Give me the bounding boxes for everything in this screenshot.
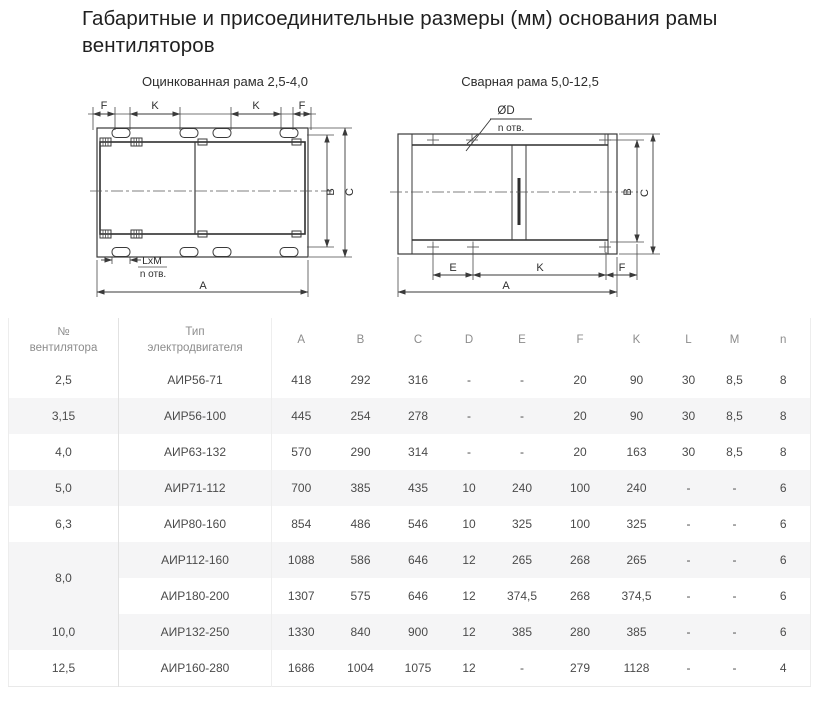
motor-type-cell: АИР71-112: [119, 470, 272, 506]
dimension-value-cell: 279: [552, 650, 609, 686]
dimension-value-cell: 8,5: [713, 398, 757, 434]
slot-holes-label: n отв.: [140, 269, 166, 280]
dimension-value-cell: 4: [757, 650, 811, 686]
fan-number-cell: 5,0: [9, 470, 119, 506]
dimension-value-cell: -: [665, 578, 713, 614]
dimension-value-cell: 268: [552, 542, 609, 578]
dimension-value-cell: -: [446, 362, 493, 398]
dimension-value-cell: 8: [757, 362, 811, 398]
fan-number-cell: 8,0: [9, 542, 119, 614]
dim-label-a: A: [502, 280, 510, 292]
table-row: 10,0АИР132-250133084090012385280385--6: [9, 614, 811, 650]
dimension-value-cell: 268: [552, 578, 609, 614]
dimension-value-cell: 374,5: [493, 578, 552, 614]
header-dim-A: A: [272, 318, 331, 362]
table-row: 8,0АИР112-160108858664612265268265--6: [9, 542, 811, 578]
header-dim-n: n: [757, 318, 811, 362]
dimension-value-cell: 8: [757, 398, 811, 434]
header-fan-number: № вентилятора: [9, 318, 119, 362]
fan-number-cell: 4,0: [9, 434, 119, 470]
dimension-value-cell: 1075: [391, 650, 446, 686]
dimension-value-cell: 20: [552, 362, 609, 398]
dimension-value-cell: 575: [331, 578, 391, 614]
dimension-value-cell: -: [446, 398, 493, 434]
dimension-value-cell: 854: [272, 506, 331, 542]
dimension-value-cell: 90: [609, 362, 665, 398]
dimension-value-cell: 1004: [331, 650, 391, 686]
hole-diameter-label: ØD: [497, 105, 514, 117]
dimension-value-cell: 646: [391, 578, 446, 614]
header-dim-L: L: [665, 318, 713, 362]
dim-label-f-left: F: [101, 100, 108, 112]
dimension-value-cell: 374,5: [609, 578, 665, 614]
dimension-value-cell: 290: [331, 434, 391, 470]
dimension-value-cell: 10: [446, 506, 493, 542]
dimension-value-cell: 12: [446, 614, 493, 650]
dimension-value-cell: 10: [446, 470, 493, 506]
dimension-value-cell: 840: [331, 614, 391, 650]
dimension-value-cell: 385: [331, 470, 391, 506]
header-dim-E: E: [493, 318, 552, 362]
dimension-value-cell: 12: [446, 650, 493, 686]
fan-number-cell: 10,0: [9, 614, 119, 650]
dimension-value-cell: 254: [331, 398, 391, 434]
dim-label-c: C: [639, 189, 651, 197]
dim-label-e: E: [449, 262, 456, 274]
fan-number-cell: 6,3: [9, 506, 119, 542]
dimension-value-cell: 8,5: [713, 434, 757, 470]
dimension-value-cell: 292: [331, 362, 391, 398]
dimension-value-cell: 546: [391, 506, 446, 542]
table-row: 12,5АИР160-28016861004107512-2791128--4: [9, 650, 811, 686]
dimension-value-cell: 90: [609, 398, 665, 434]
dimension-value-cell: -: [713, 470, 757, 506]
dimension-value-cell: 6: [757, 578, 811, 614]
dimension-value-cell: -: [665, 542, 713, 578]
welded-frame-drawing: ØD n отв.: [390, 92, 670, 310]
dimension-value-cell: -: [713, 506, 757, 542]
table-row: 4,0АИР63-132570290314--20163308,58: [9, 434, 811, 470]
table-body: 2,5АИР56-71418292316--2090308,583,15АИР5…: [9, 362, 811, 686]
dimension-value-cell: 316: [391, 362, 446, 398]
dimension-value-cell: 12: [446, 542, 493, 578]
motor-type-cell: АИР180-200: [119, 578, 272, 614]
header-dim-D: D: [446, 318, 493, 362]
header-dim-K: K: [609, 318, 665, 362]
motor-type-cell: АИР63-132: [119, 434, 272, 470]
table-row: 3,15АИР56-100445254278--2090308,58: [9, 398, 811, 434]
dimension-value-cell: 1307: [272, 578, 331, 614]
header-dim-F: F: [552, 318, 609, 362]
dim-label-b: B: [622, 188, 634, 195]
dim-label-f: F: [619, 262, 626, 274]
dimension-value-cell: 314: [391, 434, 446, 470]
table-row: 5,0АИР71-11270038543510240100240--6: [9, 470, 811, 506]
dimension-value-cell: 486: [331, 506, 391, 542]
header-dim-B: B: [331, 318, 391, 362]
dim-label-k-left: K: [151, 100, 159, 112]
dimension-value-cell: -: [665, 470, 713, 506]
dimension-value-cell: 100: [552, 470, 609, 506]
dimension-value-cell: -: [713, 614, 757, 650]
galvanized-frame-drawing: F K K F: [60, 92, 390, 310]
dim-label-a: A: [199, 280, 207, 292]
galvanized-frame-caption: Оцинкованная рама 2,5-4,0: [60, 74, 390, 92]
dimensions-table: № вентилятора Тип электродвигателя ABCDE…: [8, 318, 811, 687]
dimension-value-cell: 265: [493, 542, 552, 578]
dimension-value-cell: -: [713, 650, 757, 686]
welded-frame-caption: Сварная рама 5,0-12,5: [390, 74, 670, 92]
dim-label-f-right: F: [299, 100, 306, 112]
dimension-value-cell: 240: [609, 470, 665, 506]
motor-type-cell: АИР160-280: [119, 650, 272, 686]
header-motor-type: Тип электродвигателя: [119, 318, 272, 362]
dimension-value-cell: -: [493, 434, 552, 470]
dimension-value-cell: -: [493, 650, 552, 686]
dimension-value-cell: 646: [391, 542, 446, 578]
dimension-value-cell: 586: [331, 542, 391, 578]
table-row: 6,3АИР80-16085448654610325100325--6: [9, 506, 811, 542]
dimension-value-cell: -: [446, 434, 493, 470]
motor-type-cell: АИР112-160: [119, 542, 272, 578]
dimension-value-cell: 278: [391, 398, 446, 434]
dimension-value-cell: 240: [493, 470, 552, 506]
fan-number-cell: 3,15: [9, 398, 119, 434]
dimension-value-cell: -: [665, 614, 713, 650]
dimension-value-cell: -: [493, 398, 552, 434]
table-row: 2,5АИР56-71418292316--2090308,58: [9, 362, 811, 398]
dimension-value-cell: 30: [665, 434, 713, 470]
dimension-value-cell: 12: [446, 578, 493, 614]
dimension-value-cell: -: [713, 578, 757, 614]
motor-type-cell: АИР132-250: [119, 614, 272, 650]
table-header-row: № вентилятора Тип электродвигателя ABCDE…: [9, 318, 811, 362]
table-row: АИР180-200130757564612374,5268374,5--6: [9, 578, 811, 614]
motor-type-cell: АИР56-100: [119, 398, 272, 434]
dimension-value-cell: 435: [391, 470, 446, 506]
dimension-value-cell: 30: [665, 398, 713, 434]
dimension-value-cell: -: [665, 650, 713, 686]
dimension-value-cell: 6: [757, 506, 811, 542]
hole-count-label: n отв.: [498, 123, 524, 134]
dimension-value-cell: 6: [757, 542, 811, 578]
dim-label-k-right: K: [252, 100, 260, 112]
dimension-value-cell: 163: [609, 434, 665, 470]
dimension-value-cell: 900: [391, 614, 446, 650]
dimension-value-cell: 385: [493, 614, 552, 650]
dimension-value-cell: 700: [272, 470, 331, 506]
page-title: Габаритные и присоединительные размеры (…: [82, 6, 782, 59]
dimension-value-cell: 100: [552, 506, 609, 542]
fan-number-cell: 2,5: [9, 362, 119, 398]
dimension-value-cell: 6: [757, 470, 811, 506]
dimension-value-cell: 1088: [272, 542, 331, 578]
dimension-value-cell: 418: [272, 362, 331, 398]
dimension-value-cell: 8,5: [713, 362, 757, 398]
dim-label-b: B: [325, 188, 337, 195]
dimension-value-cell: 570: [272, 434, 331, 470]
header-dim-M: M: [713, 318, 757, 362]
header-dim-C: C: [391, 318, 446, 362]
dimension-value-cell: 1128: [609, 650, 665, 686]
galvanized-frame-figure: Оцинкованная рама 2,5-4,0: [60, 74, 390, 310]
dimension-value-cell: 8: [757, 434, 811, 470]
catalog-page: Габаритные и присоединительные размеры (…: [0, 0, 818, 702]
dimension-value-cell: -: [493, 362, 552, 398]
dimensions-table-wrap: № вентилятора Тип электродвигателя ABCDE…: [8, 318, 811, 687]
dimension-value-cell: -: [665, 506, 713, 542]
dimension-value-cell: 20: [552, 398, 609, 434]
motor-type-cell: АИР80-160: [119, 506, 272, 542]
dimension-value-cell: 1686: [272, 650, 331, 686]
dimension-value-cell: 445: [272, 398, 331, 434]
dimension-value-cell: 6: [757, 614, 811, 650]
dimension-value-cell: 265: [609, 542, 665, 578]
dim-label-c: C: [344, 188, 356, 196]
dimension-value-cell: 325: [609, 506, 665, 542]
dimension-value-cell: -: [713, 542, 757, 578]
dimension-value-cell: 325: [493, 506, 552, 542]
slot-size-label: LxM: [142, 255, 162, 267]
dimension-value-cell: 30: [665, 362, 713, 398]
fan-number-cell: 12,5: [9, 650, 119, 686]
dim-label-k: K: [536, 262, 544, 274]
dimension-value-cell: 280: [552, 614, 609, 650]
motor-type-cell: АИР56-71: [119, 362, 272, 398]
dimension-value-cell: 385: [609, 614, 665, 650]
dimension-value-cell: 1330: [272, 614, 331, 650]
dimension-value-cell: 20: [552, 434, 609, 470]
welded-frame-figure: Сварная рама 5,0-12,5 ØD n отв.: [390, 74, 670, 310]
